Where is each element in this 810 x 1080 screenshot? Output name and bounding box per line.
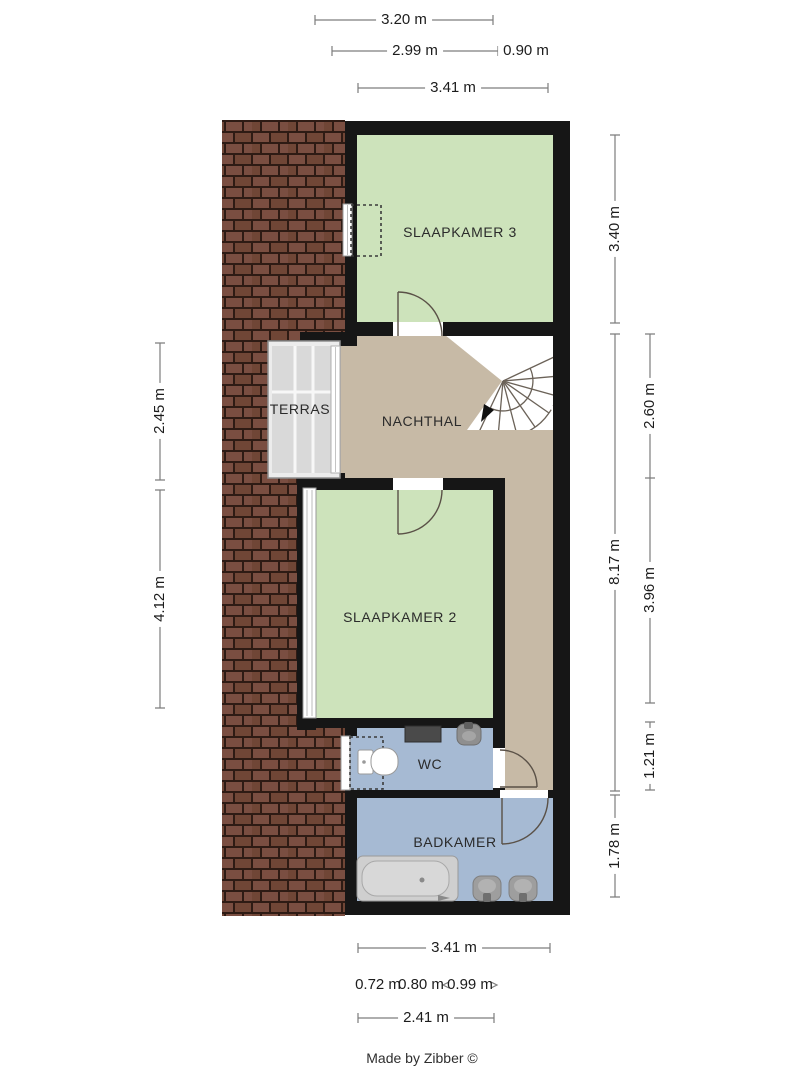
wash-basin	[509, 876, 537, 902]
wall-wc-left-top	[345, 718, 357, 736]
dim-label-bottom-partial: 2.41 m	[398, 1010, 454, 1027]
floorplan-page: SLAAPKAMER 3 NACHTHAL TERRAS SLAAPKAMER …	[0, 0, 810, 1080]
dim-label-right-817: 8.17 m	[607, 534, 624, 590]
dim-label-seg-080: 0.80 m	[393, 977, 449, 994]
wc-wash-basin	[457, 722, 481, 745]
room-label-badkamer: BADKAMER	[413, 834, 496, 850]
credit-text: Made by Zibber ©	[366, 1050, 477, 1066]
door-opening	[393, 478, 443, 490]
room-label-slaapkamer-2: SLAAPKAMER 2	[343, 609, 457, 625]
wall-slaapkamer2-right	[493, 478, 505, 748]
dormer-window	[341, 736, 350, 790]
room-label-slaapkamer-3: SLAAPKAMER 3	[403, 224, 517, 240]
door-opening	[393, 322, 443, 336]
dim-label-right-178: 1.78 m	[607, 818, 624, 874]
wash-basin	[473, 876, 501, 902]
toilet	[358, 748, 398, 775]
wall-wc-badkamer	[345, 790, 500, 798]
dim-label-top-3: 0.90 m	[498, 43, 554, 60]
wall-wc-badkamer-stub	[548, 790, 553, 798]
room-label-wc: WC	[418, 756, 443, 772]
dim-label-right-260: 2.60 m	[642, 378, 659, 434]
wall-top	[345, 121, 570, 135]
wall-right	[553, 121, 570, 915]
bathtub	[357, 856, 458, 901]
dim-label-bottom-total: 3.41 m	[426, 940, 482, 957]
dim-label-top-4: 3.41 m	[425, 80, 481, 97]
wall-slaapkamer2-left	[297, 478, 303, 730]
dim-label-seg-099: 0.99 m	[442, 977, 498, 994]
slaapkamer2-floor	[316, 490, 493, 718]
floorplan-canvas	[0, 0, 810, 1080]
dim-label-right-396: 3.96 m	[642, 562, 659, 618]
wall-badkamer-left	[345, 790, 357, 915]
dim-label-right-121: 1.21 m	[642, 728, 659, 784]
slaapkamer2-window	[303, 488, 316, 718]
dim-label-top-1: 3.20 m	[376, 12, 432, 29]
radiator	[405, 726, 441, 742]
door-opening	[493, 748, 505, 788]
dim-label-right-340: 3.40 m	[607, 201, 624, 257]
dim-label-left-245: 2.45 m	[152, 383, 169, 439]
room-label-terras: TERRAS	[270, 401, 330, 417]
dim-label-left-412: 4.12 m	[152, 571, 169, 627]
room-label-nachthal: NACHTHAL	[382, 413, 462, 429]
door-opening	[500, 790, 548, 798]
dim-label-top-2: 2.99 m	[387, 43, 443, 60]
wall-slaapkamer3-nachthal	[345, 322, 553, 336]
wall-bottom	[345, 901, 570, 915]
hall-corridor-floor	[505, 478, 553, 790]
